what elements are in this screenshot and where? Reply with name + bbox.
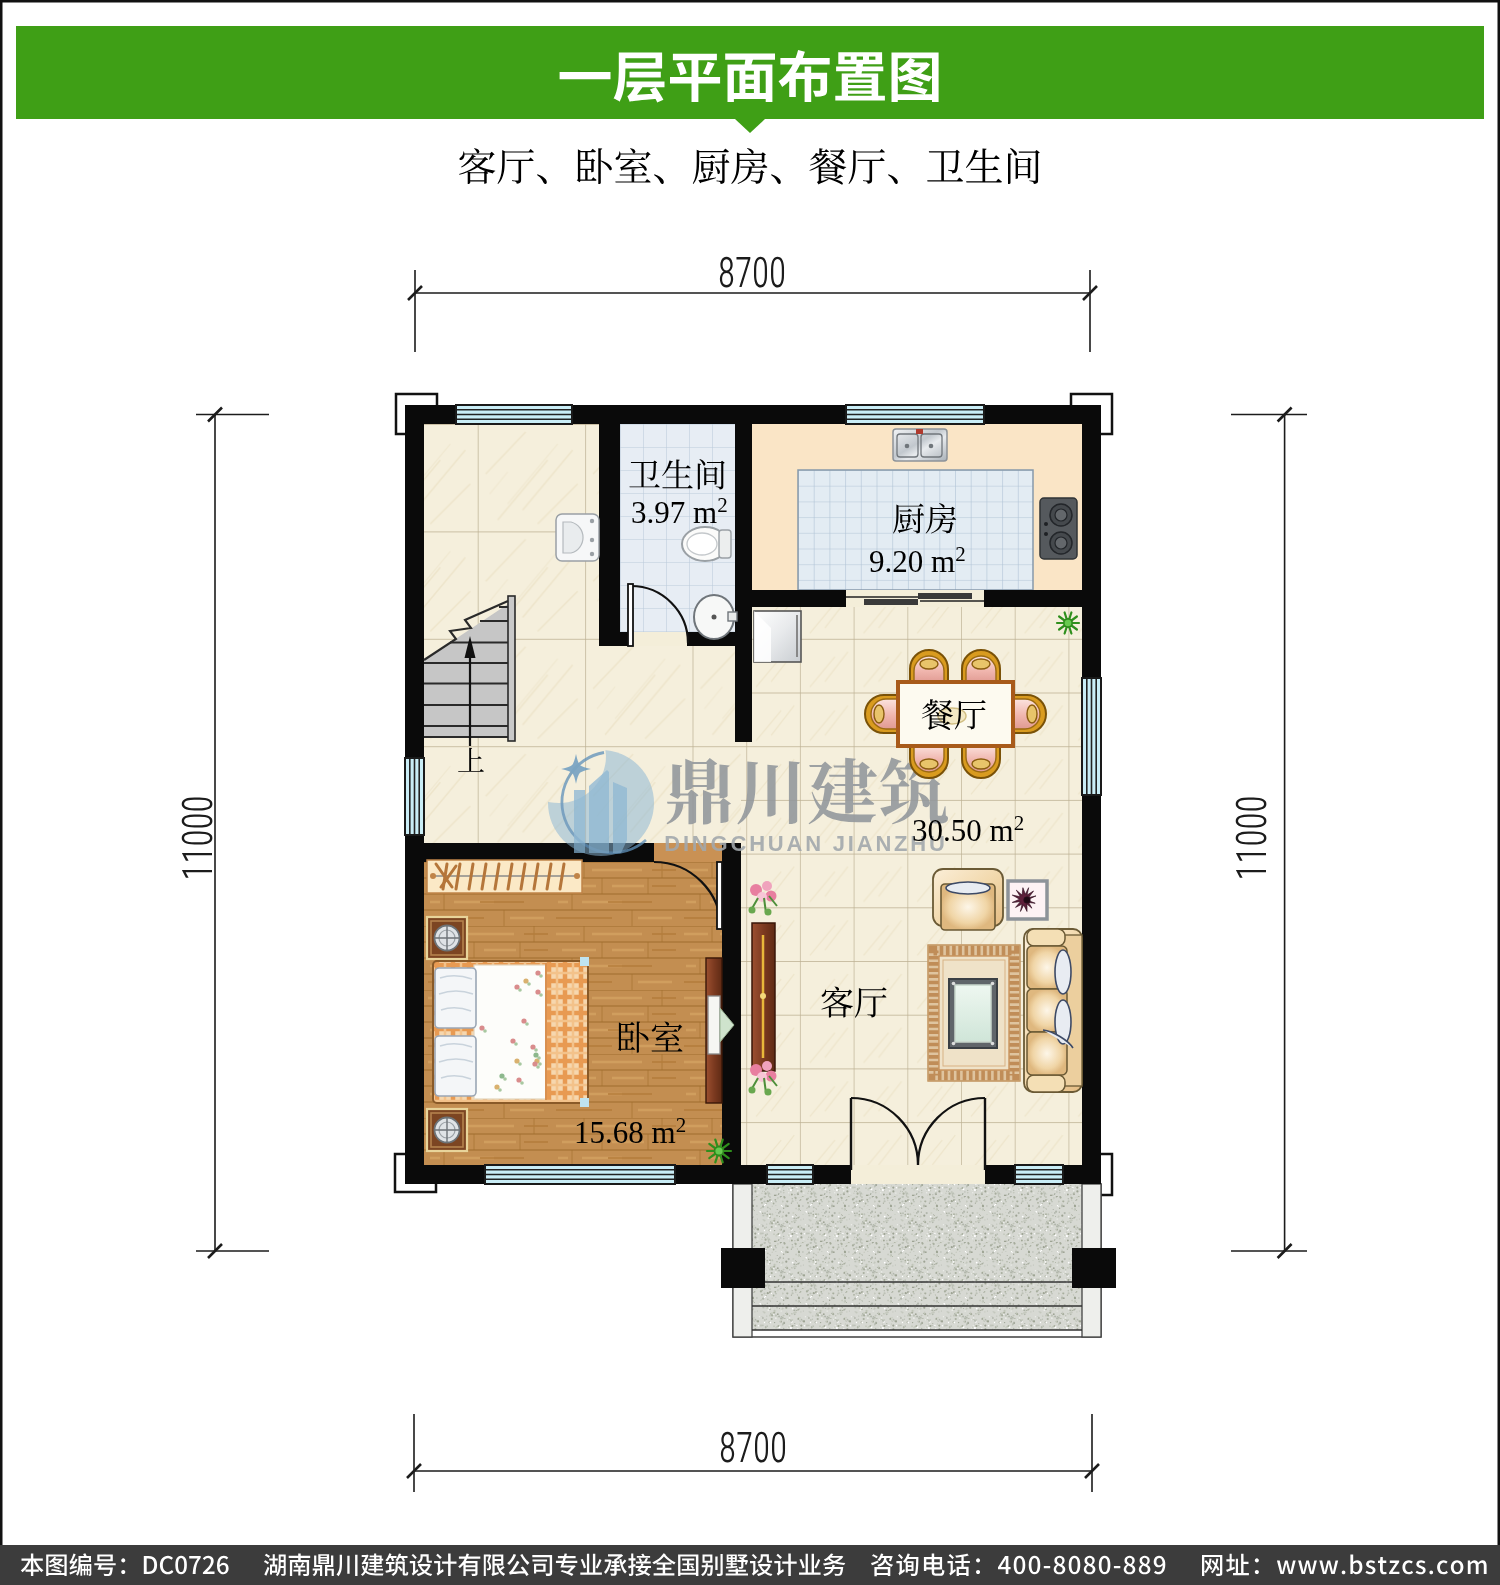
svg-text:30.50 m2: 30.50 m2 (912, 811, 1024, 848)
svg-text:15.68 m2: 15.68 m2 (574, 1113, 686, 1150)
svg-text:3.97 m2: 3.97 m2 (631, 493, 728, 530)
svg-text:9.20 m2: 9.20 m2 (869, 542, 966, 579)
svg-text:DINGCHUAN JIANZHU: DINGCHUAN JIANZHU (664, 831, 948, 856)
